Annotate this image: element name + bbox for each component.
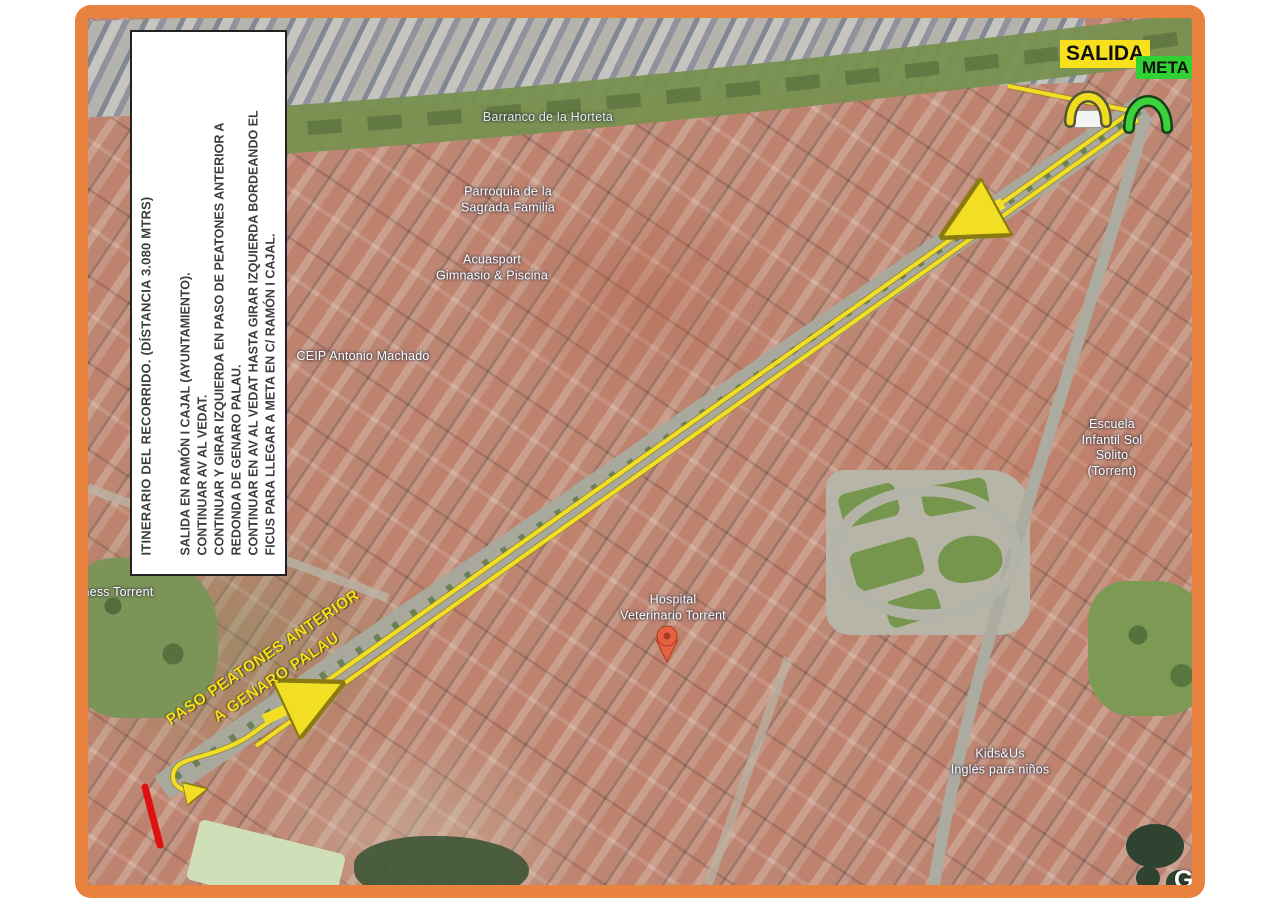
itinerary-title: ITINERARIO DEL RECORRIDO. (DÍSTANCIA 3.0… [138,51,153,556]
itinerary-line: FICUS PARA LLEGAR A META EN C/ RAMÓN I C… [262,51,279,556]
itinerary-line: REDONDA DE GENARO PALAU. [228,51,245,556]
poster: Barranco de la Horteta Parroquia de la S… [0,0,1280,906]
map-pin [656,626,678,662]
itinerary-text: ITINERARIO DEL RECORRIDO. (DÍSTANCIA 3.0… [138,51,279,556]
route-arrow-outbound [954,203,1003,230]
itinerary-line: SALIDA EN RAMÓN I CAJAL (AYUNTAMIENTO). [177,51,194,556]
itinerary-line: CONTINUAR AV AL VEDAT. [194,51,211,556]
route-line [173,86,1138,791]
orange-frame: Barranco de la Horteta Parroquia de la S… [75,5,1205,898]
itinerary-line: CONTINUAR EN AV AL VEDAT HASTA GIRAR IZQ… [245,51,262,556]
itinerary-line: CONTINUAR Y GIRAR IZQUIERDA EN PASO DE P… [211,51,228,556]
itinerary-box: ITINERARIO DEL RECORRIDO. (DÍSTANCIA 3.0… [130,30,287,576]
meta-badge: META [1136,56,1192,79]
route-outbound [246,86,1132,738]
route-return [256,120,1138,746]
closed-street-mark [145,787,160,845]
satellite-map: Barranco de la Horteta Parroquia de la S… [88,18,1192,885]
